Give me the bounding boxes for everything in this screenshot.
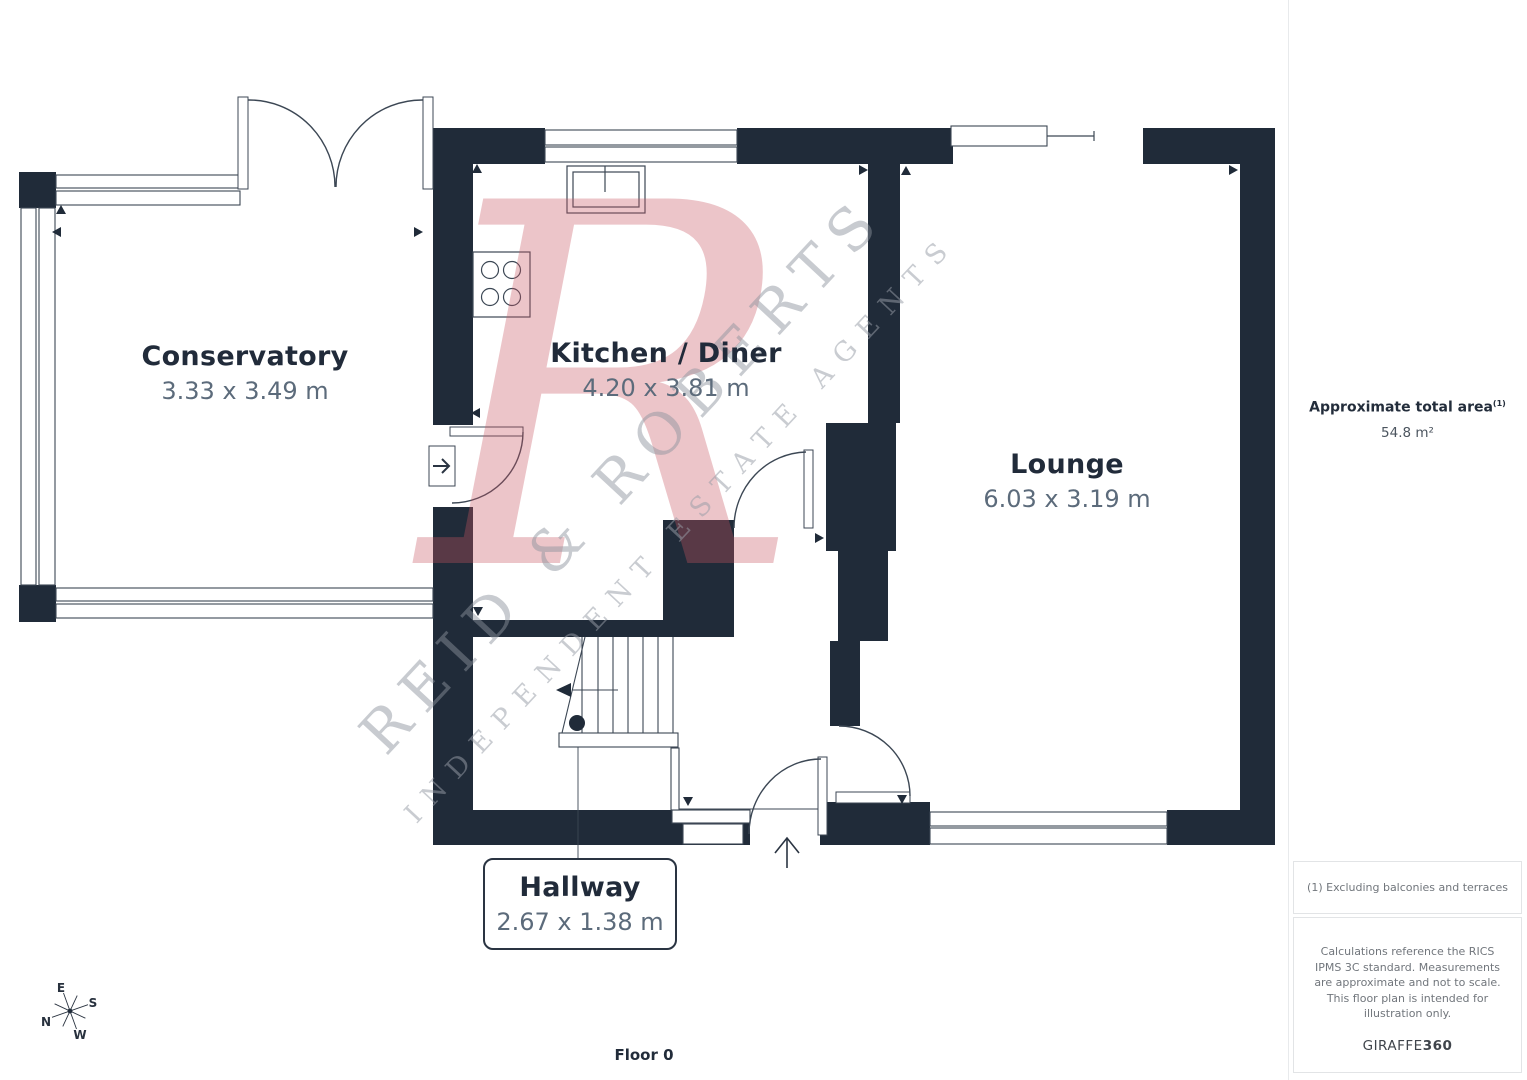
dim-arrow-up-conservatory xyxy=(56,205,66,214)
dim-arrow-right-doorway xyxy=(815,533,824,543)
french-door-left-swing xyxy=(248,100,335,187)
french-door-left-leaf xyxy=(238,97,248,189)
kitchen-window xyxy=(545,130,737,145)
front-door-leaf xyxy=(818,757,827,835)
conservatory-window-bottom-inner xyxy=(56,604,433,618)
floor-label: Floor 0 xyxy=(0,1046,1288,1064)
wall-west-lower xyxy=(433,507,473,810)
lounge-south-window xyxy=(930,812,1167,826)
stair-direction-arrow-icon xyxy=(556,683,571,697)
brand-logo: GIRAFFE360 xyxy=(1308,1039,1507,1055)
dim-arrow-right-lounge xyxy=(1229,165,1238,175)
entry-arrow-icon xyxy=(775,838,799,868)
wall-divider-mid xyxy=(838,551,888,641)
stair-newel-post xyxy=(569,715,585,731)
total-area-title-text: Approximate total area xyxy=(1309,400,1493,416)
conservatory-window-top-inner xyxy=(56,191,240,205)
dim-arrow-right-conservatory xyxy=(414,227,423,237)
dim-arrow-down-kitchen xyxy=(473,607,483,616)
french-doors xyxy=(238,97,433,189)
front-door-swing xyxy=(749,759,821,834)
lounge-north-window xyxy=(951,126,1047,146)
total-area-block: Approximate total area(1) 54.8 m² xyxy=(1288,399,1527,441)
hallway-window-inner xyxy=(683,824,743,844)
exclusions-note-box: (1) Excluding balconies and terraces xyxy=(1293,861,1522,914)
side-door-leaf xyxy=(450,427,523,436)
french-door-right-leaf xyxy=(423,97,433,189)
exclusions-note-text: (1) Excluding balconies and terraces xyxy=(1307,880,1508,896)
wall-north-right xyxy=(1143,128,1275,164)
dim-arrow-up-kitchen xyxy=(472,164,482,173)
brand-suffix: 360 xyxy=(1423,1038,1453,1054)
kitchen-fixtures xyxy=(473,166,645,317)
conservatory-window-bottom xyxy=(56,588,433,601)
wall-west-upper xyxy=(433,128,473,425)
sink xyxy=(567,166,645,213)
compass-north-label: N xyxy=(41,1015,51,1029)
dim-arrow-up-lounge xyxy=(901,166,911,175)
wall-south-hallway xyxy=(433,810,672,845)
wall-east xyxy=(1240,164,1275,845)
wall-south-lounge xyxy=(1167,810,1275,845)
sidebar-divider xyxy=(1288,0,1289,1080)
wall-north-mid xyxy=(737,128,953,164)
compass-south-label: S xyxy=(89,996,98,1010)
kitchen-hall-door-swing xyxy=(734,452,806,528)
stair-rail xyxy=(559,733,678,747)
wall-south-entry xyxy=(820,802,930,845)
conservatory-window-top xyxy=(56,175,240,188)
kitchen-window-inner xyxy=(545,147,737,162)
lounge-door xyxy=(836,726,910,803)
lounge-south-window-inner xyxy=(930,828,1167,844)
compass-center-dot xyxy=(68,1009,73,1014)
lounge-door-swing xyxy=(839,726,910,796)
brand-name: GIRAFFE xyxy=(1363,1038,1423,1054)
floorplan-page: E S N W R REID & ROBERTS INDEPENDENT EST… xyxy=(0,0,1527,1080)
hallway-dims: 2.67 x 1.38 m xyxy=(496,908,663,936)
conservatory-window-left xyxy=(21,208,36,585)
wall-divider-upper xyxy=(868,164,900,423)
conservatory-corner-sw xyxy=(19,585,56,622)
conservatory-window-left-inner xyxy=(39,208,55,585)
total-area-value: 54.8 m² xyxy=(1288,425,1527,441)
wall-divider-block xyxy=(826,423,896,551)
compass-rose: E S N W xyxy=(41,981,97,1042)
total-area-title: Approximate total area(1) xyxy=(1288,399,1527,416)
disclaimer-note-text: Calculations reference the RICS IPMS 3C … xyxy=(1308,944,1507,1022)
compass-east-label: E xyxy=(57,981,65,995)
hallway-name: Hallway xyxy=(519,872,640,903)
kitchen-hall-door-leaf xyxy=(804,450,813,528)
disclaimer-note-box: Calculations reference the RICS IPMS 3C … xyxy=(1293,917,1522,1073)
wall-divider-lower xyxy=(830,641,860,726)
side-door-swing xyxy=(452,432,523,503)
hallway-callout: Hallway 2.67 x 1.38 m xyxy=(483,858,677,950)
kitchen-hall-door xyxy=(734,450,813,528)
french-door-right-swing xyxy=(336,100,423,187)
compass-west-label: W xyxy=(73,1028,86,1042)
dimension-arrows xyxy=(52,164,1238,806)
window-details xyxy=(1047,131,1094,141)
conservatory-corner-nw xyxy=(19,172,56,208)
hallway-window xyxy=(672,810,750,823)
dim-arrow-right-kitchen xyxy=(859,165,868,175)
hob xyxy=(473,252,530,317)
side-door xyxy=(429,427,523,503)
hall-partition xyxy=(671,748,679,810)
dim-arrow-down-hallway xyxy=(683,797,693,806)
wall-kitchen-south xyxy=(433,620,677,637)
total-area-footnote-marker: (1) xyxy=(1493,399,1506,408)
